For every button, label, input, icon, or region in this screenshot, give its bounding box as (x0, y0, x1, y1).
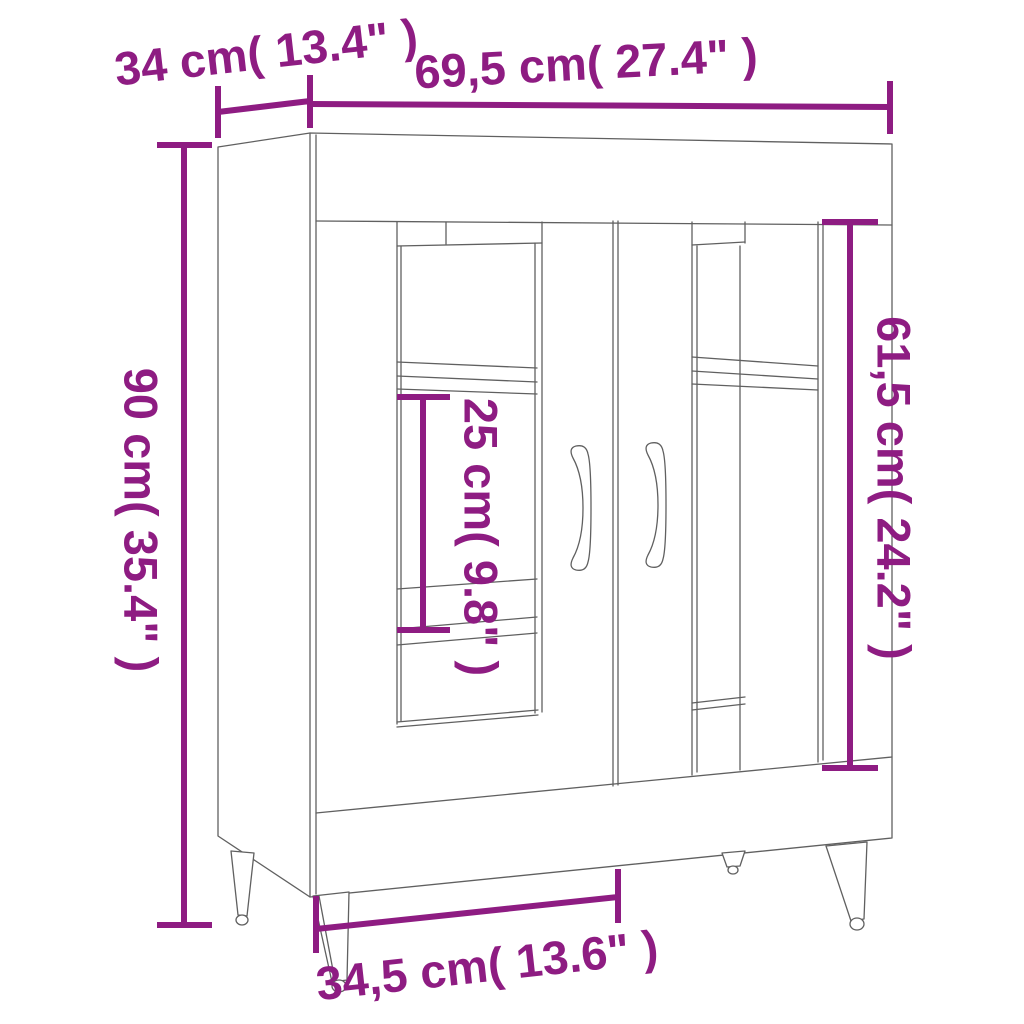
dimension-label-shelf-spacing: 25 cm( 9.8" ) (455, 398, 508, 676)
dimension-label-depth: 34 cm( 13.4" ) (112, 8, 420, 95)
front-right-leg (826, 842, 867, 921)
door-bottom-line (316, 757, 892, 813)
dimension-diagram-page: 34 cm( 13.4" ) 69,5 cm( 27.4" ) 90 cm( 3… (0, 0, 1024, 1024)
dimension-interior-height: 61,5 cm( 24.2" ) (822, 222, 921, 768)
dimension-height: 90 cm( 35.4" ) (115, 145, 213, 925)
rear-right-foot (728, 866, 738, 874)
dimension-label-compartment-width: 34,5 cm( 13.6" ) (313, 920, 660, 1010)
right-door-handle (646, 443, 666, 568)
rear-right-leg (722, 851, 745, 867)
center-divider (613, 221, 618, 786)
dimension-label-height: 90 cm( 35.4" ) (115, 368, 168, 672)
cabinet-drawing (218, 133, 892, 992)
dimension-label-interior-height: 61,5 cm( 24.2" ) (868, 316, 921, 660)
door-top-line (316, 221, 892, 225)
front-right-foot (850, 918, 864, 930)
dimension-shelf-spacing: 25 cm( 9.8" ) (397, 397, 508, 676)
cabinet-outline (218, 133, 892, 897)
right-shelves (692, 357, 818, 710)
dimension-label-width: 69,5 cm( 27.4" ) (413, 28, 759, 99)
right-door-glass (692, 222, 823, 775)
sideboard-dimension-diagram: 34 cm( 13.4" ) 69,5 cm( 27.4" ) 90 cm( 3… (0, 0, 1024, 1024)
dimension-compartment-width: 34,5 cm( 13.6" ) (313, 869, 660, 1010)
back-left-leg (231, 851, 254, 916)
left-door-handle (571, 446, 591, 571)
dimension-depth: 34 cm( 13.4" ) (112, 8, 420, 138)
back-left-foot (236, 915, 248, 925)
